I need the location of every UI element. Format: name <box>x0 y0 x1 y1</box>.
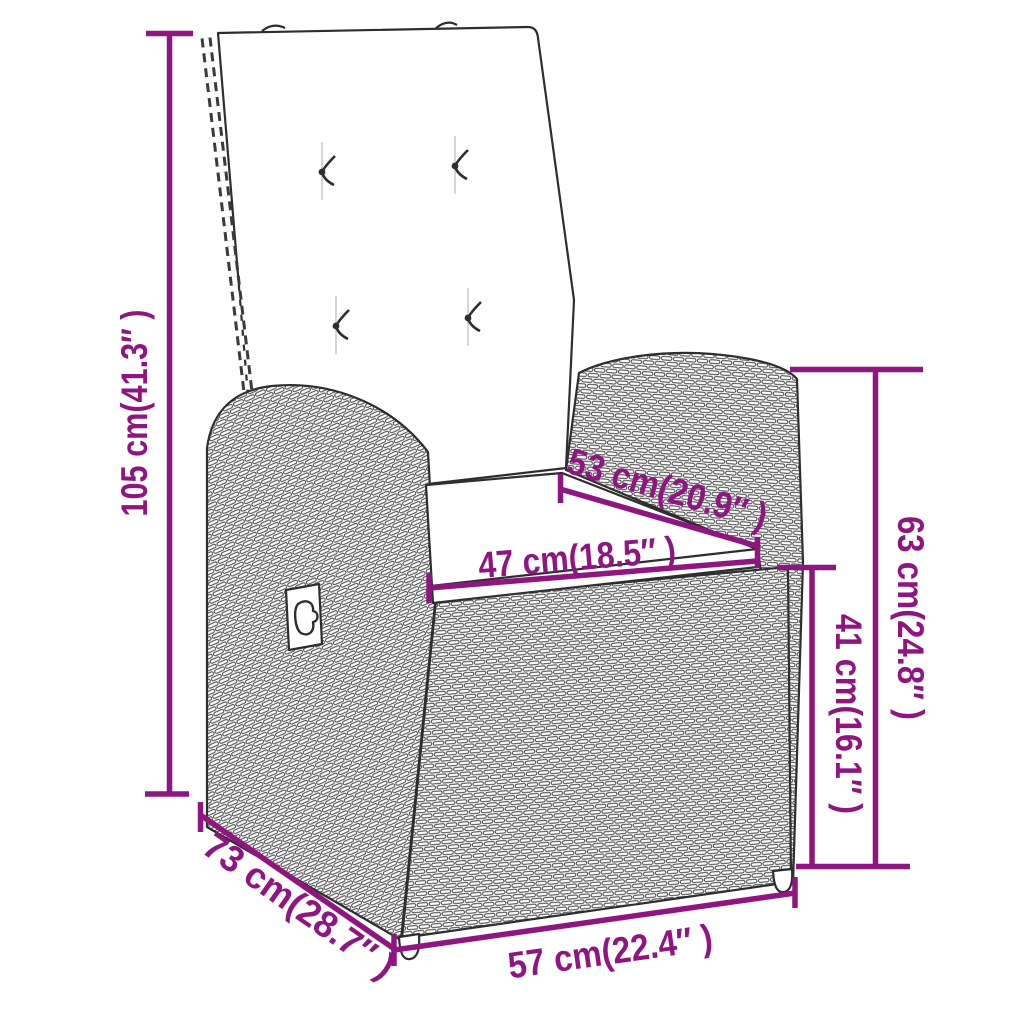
product-dimension-diagram: 105 cm(41.3″ ) 63 cm(24.8″ ) 41 cm(16.1″… <box>0 0 1024 1024</box>
label-seat-height: 41 cm(16.1″ ) <box>828 614 869 814</box>
label-armrest-height: 63 cm(24.8″ ) <box>890 516 931 720</box>
chair-foot-front-right <box>773 869 792 892</box>
label-overall-height: 105 cm(41.3″ ) <box>114 310 155 517</box>
cushion-strap <box>262 26 285 31</box>
base-front-panel <box>402 567 791 938</box>
cushion-strap <box>436 23 457 28</box>
